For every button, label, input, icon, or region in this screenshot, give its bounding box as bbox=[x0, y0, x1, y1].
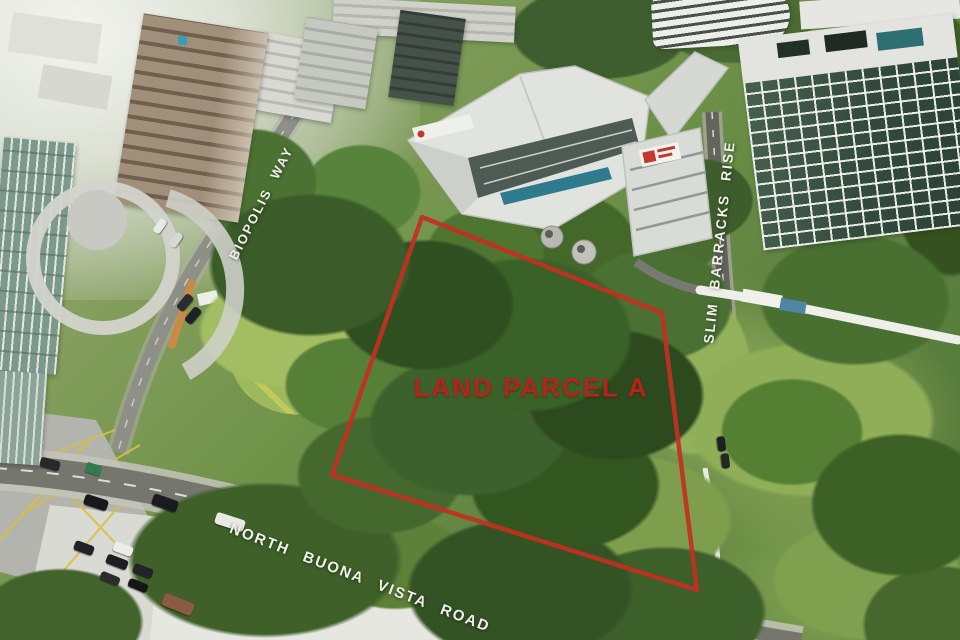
land-parcel-outline bbox=[332, 217, 697, 590]
aerial-photo: BIOPOLIS WAY SLIM BARRACKS RISE NORTH BU… bbox=[0, 0, 960, 640]
annotation-layer bbox=[0, 0, 960, 640]
land-parcel-label: LAND PARCEL A bbox=[414, 373, 649, 404]
